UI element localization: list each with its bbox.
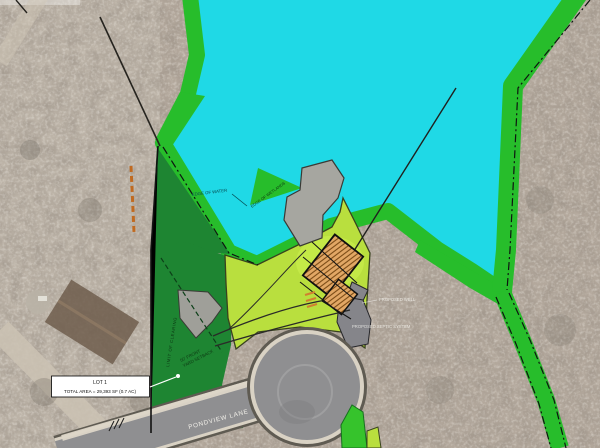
tree-blob: [78, 198, 102, 222]
site-plan-canvas: LOT 1 TOTAL AREA = 29,393 SF (0.7 AC) PO…: [0, 0, 600, 448]
tree-blob: [20, 140, 40, 160]
label-leader-dot: [176, 374, 180, 378]
lot-number-label: LOT 1: [93, 380, 107, 386]
driveway-blob: [26, 290, 50, 314]
parked-car: [38, 296, 47, 301]
pavement-patch: [279, 400, 315, 424]
septic-label: PROPOSED SEPTIC SYSTEM: [352, 324, 411, 329]
lot-area-label: TOTAL AREA = 29,393 SF (0.7 AC): [64, 389, 137, 394]
tree-blob: [526, 186, 554, 214]
tree-blob: [426, 376, 454, 404]
well-label: PROPOSED WELL: [379, 297, 416, 302]
roadside-lot-sliver: [367, 427, 381, 448]
tree-blob: [544, 314, 576, 346]
site-plan-map: LOT 1 TOTAL AREA = 29,393 SF (0.7 AC) PO…: [0, 0, 600, 448]
